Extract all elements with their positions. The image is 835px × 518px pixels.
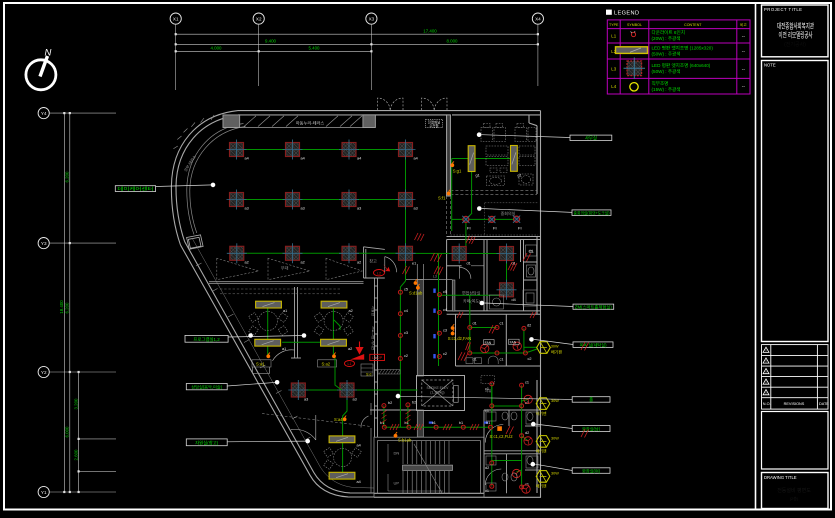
svg-text:18.400: 18.400 [59,300,64,314]
svg-text:C1: C1 [529,250,534,254]
svg-text:c4: c4 [404,309,408,313]
svg-text:SMOKE ELEV: SMOKE ELEV [426,386,449,390]
svg-text:샤워: 샤워 [485,388,491,393]
svg-text:(50W) : 주광색: (50W) : 주광색 [652,51,681,58]
svg-text:DATE: DATE [819,402,829,406]
svg-text:L2: L2 [377,271,381,275]
svg-text:(전기공사): (전기공사) [784,41,806,48]
svg-text:NOTE: NOTE [764,63,776,68]
svg-text:L1: L1 [611,34,616,39]
svg-text:데이케어센터: 데이케어센터 [117,185,153,192]
svg-text:L3: L3 [433,275,437,279]
svg-text:X4: X4 [535,17,541,22]
svg-text:6.200: 6.200 [65,171,70,183]
svg-text:대전종합사회복지관: 대전종합사회복지관 [777,21,814,31]
svg-text:화장실(남): 화장실(남) [582,425,601,432]
svg-text:(1,350kg): (1,350kg) [430,391,444,395]
svg-text:ZM(스마트홀체험실): ZM(스마트홀체험실) [575,303,613,310]
svg-text:d2: d2 [527,324,531,328]
svg-text:Y4: Y4 [41,111,47,116]
svg-text:e1: e1 [412,261,416,265]
svg-text:!: ! [766,370,767,374]
svg-text:자원실(창고): 자원실(창고) [195,439,219,446]
svg-text:--: -- [742,34,746,40]
svg-text:홀: 홀 [589,396,593,403]
svg-text:Y3: Y3 [41,241,47,246]
svg-text:a3: a3 [353,398,357,402]
svg-text:b1: b1 [432,421,436,425]
svg-text:a4: a4 [357,444,361,448]
svg-text:2.600: 2.600 [73,449,78,461]
svg-text:8.000: 8.000 [447,39,459,44]
svg-text:배기팬: 배기팬 [536,484,547,489]
svg-text:g1: g1 [476,174,480,178]
svg-text:a4: a4 [357,480,361,484]
svg-text:L1: L1 [348,362,352,366]
svg-text:PROJECT TITLE: PROJECT TITLE [764,7,802,12]
svg-text:a2: a2 [301,260,305,264]
svg-text:a3: a3 [304,398,308,402]
svg-text:30W: 30W [551,345,559,349]
svg-text:수전함: 수전함 [429,123,438,128]
svg-text:중회의실: 중회의실 [501,210,516,216]
svg-text:c1: c1 [485,409,489,413]
svg-text:6.200: 6.200 [65,302,70,314]
svg-text:사무실: 사무실 [585,135,597,142]
svg-text:배기팬: 배기팬 [536,449,547,454]
svg-text:비고: 비고 [740,22,747,27]
svg-text:a4: a4 [245,157,249,161]
svg-text:L4: L4 [611,84,616,89]
svg-text:30W: 30W [551,472,559,476]
svg-text:a2: a2 [357,260,361,264]
svg-text:FI: FI [467,226,471,231]
svg-text:프로그램 게시판: 프로그램 게시판 [371,326,376,351]
svg-text:c1: c1 [500,358,504,362]
svg-text:3.200: 3.200 [73,398,78,410]
svg-text:Y1: Y1 [41,490,47,495]
svg-text:b2: b2 [412,401,416,405]
svg-text:면접상담실: 면접상담실 [462,290,481,296]
svg-text:c2: c2 [528,357,532,361]
svg-text:d2: d2 [525,431,529,435]
svg-text:이전 리모델링공사: 이전 리모델링공사 [778,30,812,40]
svg-text:d2: d2 [485,466,489,470]
svg-text:LEGEND: LEGEND [614,11,639,17]
svg-text:--: -- [742,67,746,73]
svg-text:S:d1ab: S:d1ab [409,291,423,296]
svg-text:!: ! [766,349,767,353]
svg-text:c3: c3 [404,331,408,335]
svg-text:X3: X3 [369,17,375,22]
svg-text:S:c1,d2,FAN: S:c1,d2,FAN [448,336,472,341]
svg-text:다운라이트 6인치: 다운라이트 6인치 [652,29,685,36]
svg-text:S:a2: S:a2 [322,361,331,366]
svg-text:DN: DN [394,451,400,456]
svg-text:FAN: FAN [510,340,517,344]
svg-text:Y2: Y2 [41,370,47,375]
svg-text:b1: b1 [486,421,490,425]
svg-text:N.O.: N.O. [763,402,771,406]
svg-text:창고: 창고 [369,258,377,264]
svg-text:c5: c5 [443,290,447,294]
svg-text:!: ! [766,381,767,385]
svg-text:c4: c4 [443,308,447,312]
svg-text:c3: c3 [443,329,447,333]
svg-text:화장실(여): 화장실(여) [582,467,601,474]
svg-text:FAN: FAN [485,341,492,345]
svg-text:CONTENT: CONTENT [684,23,702,27]
svg-text:S:b1ab: S:b1ab [398,437,412,442]
svg-text:--: -- [742,49,746,55]
svg-text:a3: a3 [357,207,361,211]
svg-text:S:a4: S:a4 [334,417,343,422]
svg-text:30W: 30W [551,437,559,441]
svg-text:S:f1: S:f1 [438,196,446,201]
svg-text:c5: c5 [404,288,408,292]
svg-text:L2-2P: L2-2P [372,356,383,360]
svg-text:c1: c1 [500,322,504,326]
svg-text:사물함: 사물함 [371,306,376,317]
svg-text:프로그램실1,2: 프로그램실1,2 [193,336,220,342]
svg-text:a3: a3 [414,207,418,211]
svg-text:b1: b1 [459,421,463,425]
svg-text:X2: X2 [256,17,262,22]
svg-text:!: ! [766,360,767,364]
svg-text:전등설비 평면도: 전등설비 평면도 [777,487,811,494]
svg-text:무대: 무대 [281,265,289,272]
svg-text:a1: a1 [282,347,286,351]
svg-text:a1: a1 [283,309,287,313]
svg-text:DRAWING TITLE: DRAWING TITLE [764,475,797,480]
svg-text:중회의실(회의+도크실): 중회의실(회의+도크실) [574,209,611,216]
svg-text:a2: a2 [348,347,352,351]
svg-text:c1: c1 [525,381,529,385]
svg-text:(50W) : 주광색: (50W) : 주광색 [652,68,681,75]
svg-text:b2: b2 [388,401,392,405]
svg-text:UP: UP [394,481,400,486]
svg-text:FI: FI [518,226,522,231]
svg-text:!: ! [766,391,767,395]
svg-text:a2: a2 [349,309,353,313]
svg-text:a4: a4 [301,157,305,161]
svg-text:c2: c2 [443,352,447,356]
svg-text:a3: a3 [301,207,305,211]
svg-text:배기팬: 배기팬 [551,350,563,355]
svg-text:상담실(음악,미술): 상담실(음악,미술) [191,384,223,391]
svg-text:d1: d1 [473,322,477,326]
svg-text:배기팬: 배기팬 [536,411,547,416]
svg-text:X1: X1 [173,17,179,22]
svg-text:c2: c2 [404,354,408,358]
svg-text:L3: L3 [611,67,616,72]
svg-text:S:c1,c2,FU2: S:c1,c2,FU2 [490,434,514,439]
svg-text:(20W) : 주광색: (20W) : 주광색 [652,35,681,42]
svg-text:5.400: 5.400 [309,46,321,51]
svg-text:d1: d1 [467,262,471,266]
svg-text:4.000: 4.000 [211,46,223,51]
svg-text:6.000: 6.000 [65,426,70,438]
svg-text:(2층): (2층) [790,495,799,501]
svg-text:d4: d4 [512,298,516,302]
svg-text:S:a1: S:a1 [256,361,265,366]
svg-text:17.400: 17.400 [423,29,437,34]
svg-text:9.400: 9.400 [265,39,277,44]
svg-text:아동누리-테라스: 아동누리-테라스 [296,120,325,127]
svg-text:a4: a4 [357,157,361,161]
svg-text:SYMBOL: SYMBOL [627,23,642,27]
svg-text:a4: a4 [414,157,418,161]
svg-text:a2: a2 [245,260,249,264]
svg-text:--: -- [742,84,746,90]
svg-text:TYPE: TYPE [609,23,619,27]
svg-text:S:g1: S:g1 [453,169,462,174]
svg-text:S:d: S:d [366,373,371,377]
svg-text:LED 평판 엣지조명 (1285x320): LED 평판 엣지조명 (1285x320) [652,45,714,52]
svg-text:(15W) : 주광색: (15W) : 주광색 [652,86,681,93]
svg-text:LED 평판 엣지조명 (640x640): LED 평판 엣지조명 (640x640) [652,62,711,69]
svg-text:a3: a3 [245,207,249,211]
svg-text:카페(복도): 카페(복도) [463,298,481,304]
svg-text:FI: FI [493,226,497,231]
svg-text:직부조명: 직부조명 [652,80,669,87]
svg-text:N: N [45,48,52,59]
svg-text:REVISIONS: REVISIONS [784,402,805,406]
